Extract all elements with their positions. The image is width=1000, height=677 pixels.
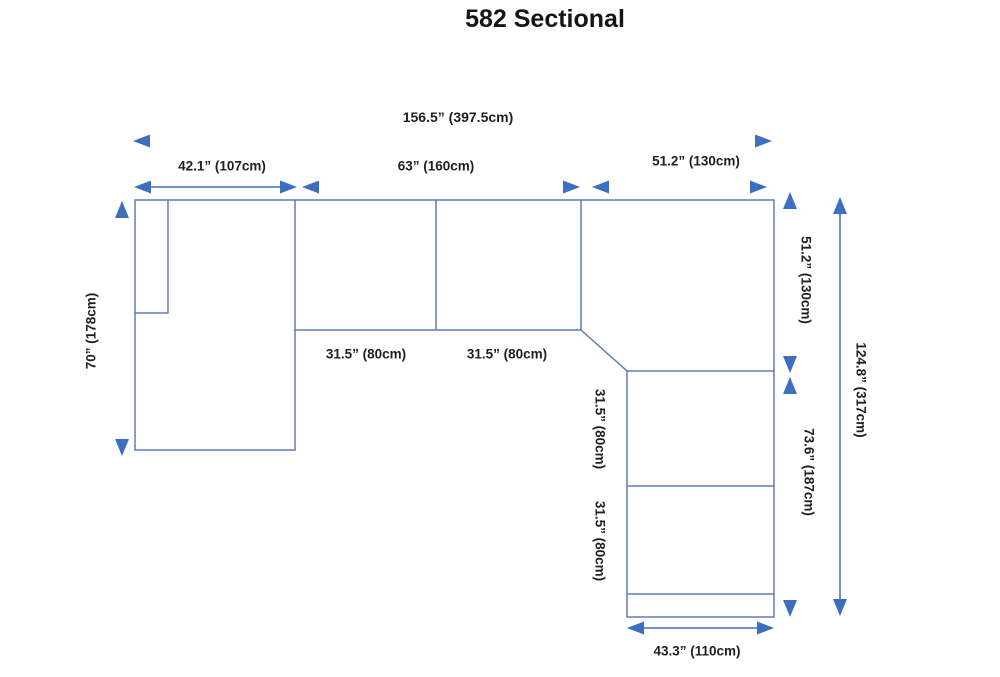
arrow-up-icon bbox=[783, 192, 797, 209]
arrow-down-icon bbox=[783, 600, 797, 617]
arrow-up-icon bbox=[783, 377, 797, 394]
middle-width-label: 63” (160cm) bbox=[398, 159, 475, 174]
overall-height-label: 124.8” (317cm) bbox=[854, 342, 869, 437]
right-seat-2-label: 31.5” (80cm) bbox=[593, 501, 608, 581]
arrow-left-icon bbox=[592, 181, 609, 194]
sectional-diagram bbox=[0, 0, 1000, 677]
overall-width-label: 156.5” (397.5cm) bbox=[403, 109, 514, 125]
middle-seat-1-label: 31.5” (80cm) bbox=[326, 347, 406, 362]
sectional-spec-sheet: 582 Sectional bbox=[0, 0, 1000, 677]
arrow-down-icon bbox=[115, 439, 129, 456]
arrow-left-icon bbox=[627, 622, 644, 635]
bottom-width-label: 43.3” (110cm) bbox=[653, 644, 740, 659]
arrow-right-icon bbox=[280, 181, 297, 194]
corner-width-label: 51.2” (130cm) bbox=[652, 154, 740, 169]
chaise-width-label: 42.1” (107cm) bbox=[178, 159, 266, 174]
arrow-right-icon bbox=[757, 622, 774, 635]
arrow-down-icon bbox=[783, 356, 797, 373]
arrow-up-icon bbox=[833, 197, 847, 214]
right-seat-1-label: 31.5” (80cm) bbox=[593, 389, 608, 469]
right-upper-height-label: 51.2” (130cm) bbox=[799, 236, 814, 324]
arrow-left-icon bbox=[134, 181, 151, 194]
arrow-right-icon bbox=[563, 181, 580, 194]
sofa-outer-outline bbox=[135, 200, 774, 617]
left-height-label: 70” (178cm) bbox=[84, 293, 99, 370]
right-lower-height-label: 73.6” (187cm) bbox=[802, 428, 817, 516]
middle-seat-2-label: 31.5” (80cm) bbox=[467, 347, 547, 362]
arrow-left-icon bbox=[302, 181, 319, 194]
chaise-armrest-line bbox=[135, 200, 168, 313]
arrow-up-icon bbox=[115, 201, 129, 218]
arrow-right-icon bbox=[750, 181, 767, 194]
arrow-right-icon bbox=[755, 135, 772, 148]
arrow-down-icon bbox=[833, 599, 847, 616]
arrow-left-icon bbox=[133, 135, 150, 148]
